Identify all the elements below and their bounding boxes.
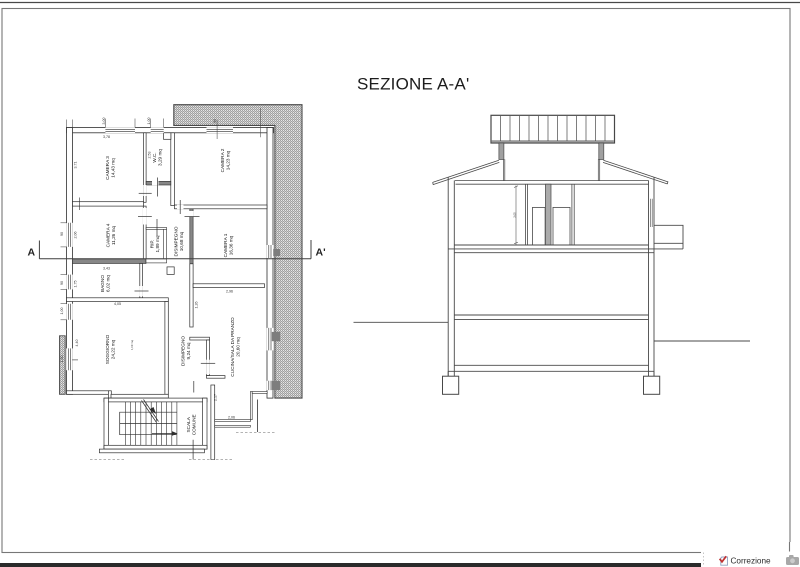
svg-text:CAMERA 314,43 mq: CAMERA 314,43 mq bbox=[105, 156, 115, 180]
svg-text:SCALACOMUNE: SCALACOMUNE bbox=[186, 414, 196, 435]
svg-text:2,53: 2,53 bbox=[148, 152, 152, 159]
svg-text:2,06: 2,06 bbox=[74, 232, 78, 239]
svg-text:90: 90 bbox=[60, 281, 64, 285]
svg-text:3,78: 3,78 bbox=[103, 135, 110, 139]
svg-text:3,43: 3,43 bbox=[103, 267, 110, 271]
svg-text:90: 90 bbox=[60, 232, 64, 236]
svg-text:CAMERA 411,26 mq: CAMERA 411,26 mq bbox=[106, 223, 116, 247]
svg-text:A': A' bbox=[316, 247, 326, 259]
svg-text:1,00: 1,00 bbox=[60, 308, 64, 315]
svg-text:1,75: 1,75 bbox=[74, 281, 78, 288]
svg-text:90: 90 bbox=[213, 119, 217, 123]
svg-text:1,26: 1,26 bbox=[195, 302, 199, 309]
svg-text:A: A bbox=[28, 247, 36, 259]
svg-text:1,50: 1,50 bbox=[60, 356, 64, 363]
svg-text:BAGNO6,02 mq: BAGNO6,02 mq bbox=[100, 275, 110, 292]
svg-text:Correzione: Correzione bbox=[731, 557, 771, 566]
svg-text:3,05: 3,05 bbox=[513, 212, 517, 218]
svg-text:SEZIONE A-A': SEZIONE A-A' bbox=[357, 75, 469, 94]
svg-text:2,17: 2,17 bbox=[214, 394, 218, 401]
svg-text:3,00: 3,00 bbox=[102, 118, 106, 125]
svg-text:4,40: 4,40 bbox=[75, 340, 79, 347]
svg-text:CAMERA 214,23 mq: CAMERA 214,23 mq bbox=[220, 148, 230, 172]
svg-text:CAMERA 116,36 mq: CAMERA 116,36 mq bbox=[223, 233, 233, 257]
svg-text:2,06: 2,06 bbox=[228, 416, 235, 420]
svg-text:3,71: 3,71 bbox=[74, 162, 78, 169]
svg-text:1,00: 1,00 bbox=[147, 118, 151, 125]
svg-text:2,96: 2,96 bbox=[226, 289, 233, 293]
svg-text:1,09 mq: 1,09 mq bbox=[130, 340, 134, 351]
svg-text:4,05: 4,05 bbox=[114, 302, 121, 306]
